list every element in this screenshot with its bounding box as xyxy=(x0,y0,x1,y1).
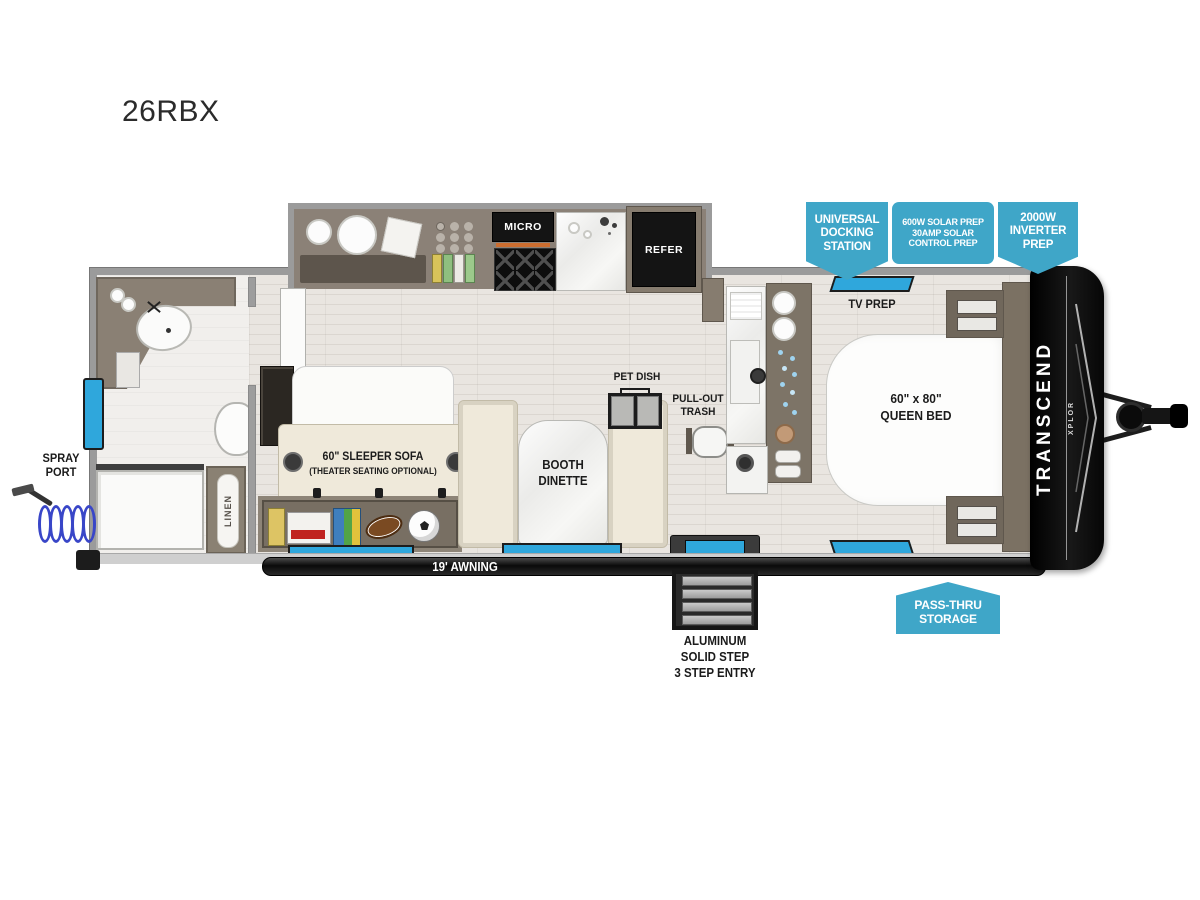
range-hood-trim xyxy=(496,243,550,247)
latch-icon xyxy=(438,488,446,498)
bed-label-line2: QUEEN BED xyxy=(846,409,986,424)
trash-label-line2: TRASH xyxy=(661,406,735,418)
callout-text: 600W SOLAR PREP xyxy=(892,217,994,227)
latch-icon xyxy=(313,488,321,498)
linen-closet: LINEN xyxy=(206,466,246,554)
cap-divider xyxy=(1066,276,1067,560)
nightstand-top xyxy=(946,290,1004,338)
game-box-icon xyxy=(333,508,361,546)
page-title: 26RBX xyxy=(122,95,220,129)
callout-text: STORAGE xyxy=(896,613,1000,627)
dinette-label-line2: DINETTE xyxy=(523,474,604,488)
sofa-bed-back xyxy=(292,366,454,430)
pull-out-trash xyxy=(692,426,728,458)
callout-solar-prep: 600W SOLAR PREP 30AMP SOLAR CONTROL PREP xyxy=(892,202,994,264)
callout-text: 30AMP SOLAR xyxy=(892,228,994,238)
floorplan-canvas: 26RBX MICRO REFER LINEN xyxy=(0,0,1200,900)
tray-icon xyxy=(775,450,801,463)
jar-icon xyxy=(432,254,442,283)
step-label-line3: 3 STEP ENTRY xyxy=(655,666,775,680)
bathroom-door xyxy=(280,288,306,374)
entry-steps xyxy=(672,570,758,630)
callout-text: 2000W xyxy=(998,212,1078,225)
callout-text: UNIVERSAL xyxy=(806,214,888,227)
spray-port-label-line2: PORT xyxy=(21,466,100,479)
soccer-ball-icon xyxy=(408,510,440,542)
refrigerator: REFER xyxy=(632,212,696,287)
hitch-coupler xyxy=(1170,404,1188,428)
step-label-line2: SOLID STEP xyxy=(655,650,775,664)
kitchen-counter xyxy=(556,212,626,291)
rear-window xyxy=(83,378,104,450)
callout-text: STATION xyxy=(806,241,888,254)
callout-text: PASS-THRU xyxy=(896,599,1000,613)
rear-bumper xyxy=(76,550,100,570)
callout-text: DOCKING xyxy=(806,227,888,240)
spray-hose-coil xyxy=(82,505,96,543)
microwave-label: MICRO xyxy=(504,221,542,233)
awning-label: 19' AWNING xyxy=(410,560,520,574)
bowl-icon xyxy=(772,291,796,315)
plate-icon xyxy=(306,219,332,245)
game-box-icon xyxy=(287,512,331,544)
decor-icon xyxy=(121,297,136,312)
tray-icon xyxy=(775,465,801,478)
kitchen-faucet-icon xyxy=(600,217,609,226)
jar-icon xyxy=(454,254,464,283)
kitchen-lower-cabinet xyxy=(300,255,426,283)
jar-icon xyxy=(443,254,453,283)
pet-dish-label: PET DISH xyxy=(598,371,675,383)
callout-pass-thru-storage: PASS-THRU STORAGE xyxy=(896,582,1000,634)
bathroom-wall xyxy=(248,277,256,307)
cutting-board-icon xyxy=(381,217,423,259)
callout-text: CONTROL PREP xyxy=(892,238,994,248)
soccer-pentagon xyxy=(420,521,429,530)
drawer-front xyxy=(957,300,997,314)
callout-inverter-prep: 2000W INVERTER PREP xyxy=(998,202,1078,274)
cooktop xyxy=(494,248,556,291)
linen-roll: LINEN xyxy=(217,474,239,548)
linen-label: LINEN xyxy=(223,495,233,527)
shower xyxy=(96,470,204,550)
game-box-icon xyxy=(268,508,285,546)
drawer-front xyxy=(957,317,997,331)
planter-icon xyxy=(775,424,795,444)
nightstand-bottom xyxy=(946,496,1004,544)
microwave: MICRO xyxy=(492,212,554,242)
sofa-label-line2: (THEATER SEATING OPTIONAL) xyxy=(298,466,447,476)
bathroom-wall xyxy=(248,385,256,557)
tv-prep-window xyxy=(829,276,914,292)
trash-label-line1: PULL-OUT xyxy=(661,393,735,405)
drawer-front xyxy=(957,506,997,520)
callout-text: INVERTER xyxy=(998,225,1078,238)
tv-prep-label: TV PREP xyxy=(826,298,918,311)
bed-label-line1: 60" x 80" xyxy=(846,392,986,407)
end-cabinet xyxy=(702,278,724,322)
bowl-icon xyxy=(772,317,796,341)
peninsula-faucet-icon xyxy=(750,368,766,384)
dinette-bench-left xyxy=(458,400,518,548)
spray-port-label-line1: SPRAY xyxy=(21,452,100,465)
vanity-shelf xyxy=(116,352,140,388)
glass-icon xyxy=(583,230,592,239)
glass-icon xyxy=(568,222,580,234)
awning-bar xyxy=(262,557,1046,576)
step-label-line1: ALUMINUM xyxy=(655,634,775,648)
drawer-front xyxy=(957,523,997,537)
towel-icon xyxy=(730,292,762,320)
front-cap: TRANSCEND XPLOR xyxy=(1030,266,1104,570)
hutch-detail-dots xyxy=(778,350,783,355)
sofa-label-line1: 60" SLEEPER SOFA xyxy=(304,451,442,464)
dinette-label-line1: BOOTH xyxy=(523,458,604,472)
kitchen-accessory-dots xyxy=(436,222,445,231)
jar-icon xyxy=(465,254,475,283)
cap-chevron-graphic xyxy=(1074,274,1100,562)
brand-logo: TRANSCEND xyxy=(1034,272,1060,564)
game-box-red xyxy=(291,530,325,539)
plate-icon xyxy=(337,215,377,255)
latch-icon xyxy=(375,488,383,498)
sink-drain-icon xyxy=(166,328,171,333)
refrigerator-label: REFER xyxy=(645,244,683,256)
callout-text: PREP xyxy=(998,239,1078,252)
pet-dish xyxy=(608,393,662,429)
appliance-dial-icon xyxy=(736,454,754,472)
